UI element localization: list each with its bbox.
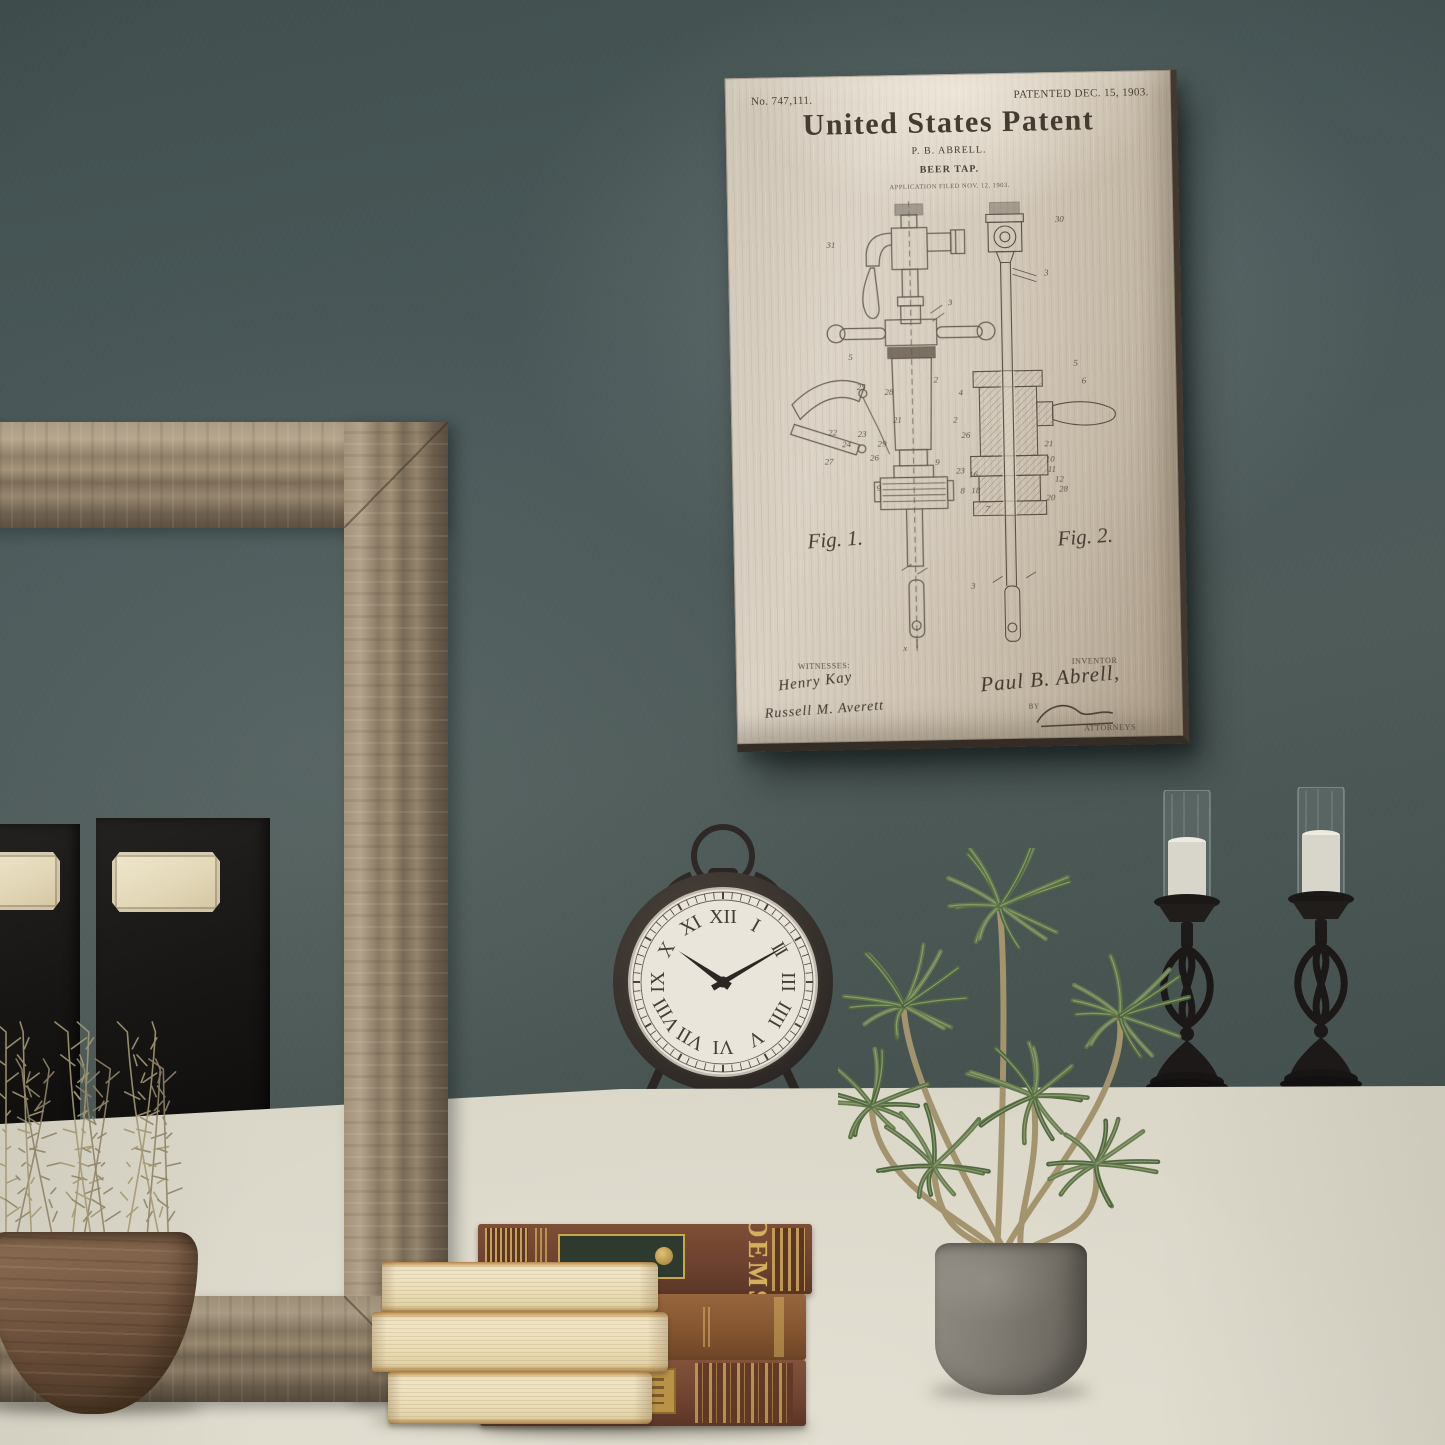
- attorneys-label: ATTORNEYS: [1084, 723, 1136, 733]
- svg-text:4: 4: [958, 388, 963, 398]
- svg-text:6: 6: [1082, 375, 1087, 385]
- gold-rules: [774, 1297, 784, 1356]
- box-label-plate: [112, 852, 220, 912]
- svg-text:21: 21: [893, 414, 902, 424]
- book-fore-edge: [382, 1262, 658, 1312]
- svg-text:23: 23: [956, 465, 966, 475]
- svg-text:XII: XII: [709, 906, 737, 928]
- pocket-watch-style-clock: XIIIIIIIIIIIIVVIVIIVIIIIXXXI: [598, 812, 848, 1122]
- cream-book-stack: [372, 1262, 670, 1426]
- box-label-plate: [0, 852, 60, 910]
- gold-band-pattern: [695, 1363, 793, 1422]
- svg-text:18: 18: [971, 485, 981, 495]
- svg-text:29: 29: [878, 438, 888, 448]
- reference-numerals: 3135225282122232429272699x30354622621238…: [820, 214, 1092, 655]
- svg-text:20: 20: [1046, 492, 1056, 502]
- svg-text:3: 3: [1043, 267, 1049, 277]
- svg-text:21: 21: [1044, 438, 1053, 448]
- svg-text:5: 5: [848, 352, 853, 362]
- room-scene: No. 747,111. PATENTED DEC. 15, 1903. Uni…: [0, 0, 1445, 1445]
- book-fore-edge: [388, 1372, 652, 1424]
- svg-text:10: 10: [1046, 454, 1056, 464]
- frame-right-stile: [344, 422, 448, 1400]
- svg-text:16: 16: [969, 469, 979, 479]
- concrete-plant-pot: [935, 1243, 1087, 1395]
- svg-text:2: 2: [934, 374, 939, 384]
- svg-text:23: 23: [858, 429, 868, 439]
- svg-text:x: x: [902, 643, 907, 653]
- svg-text:7: 7: [985, 503, 990, 513]
- svg-text:VI: VI: [712, 1036, 733, 1058]
- svg-text:28: 28: [884, 387, 894, 397]
- gold-band-pattern: [772, 1228, 805, 1291]
- svg-text:26: 26: [870, 452, 880, 462]
- dried-rosemary-sprigs: [0, 1008, 280, 1254]
- patent-print-artwork: No. 747,111. PATENTED DEC. 15, 1903. Uni…: [725, 70, 1190, 753]
- svg-text:12: 12: [1055, 473, 1065, 483]
- svg-text:28: 28: [1059, 483, 1069, 493]
- patent-technical-drawing: 3135225282122232429272699x30354622621238…: [725, 70, 1184, 743]
- book-fore-edge: [372, 1312, 668, 1372]
- svg-text:9: 9: [876, 483, 881, 493]
- svg-text:22: 22: [828, 427, 838, 437]
- pillar-candle: [1302, 835, 1340, 897]
- book-spine-title: POEMS: [742, 1224, 773, 1294]
- svg-text:8: 8: [960, 485, 965, 495]
- svg-text:11: 11: [1048, 464, 1056, 474]
- fig1-beer-tap-elevation: [786, 200, 1001, 655]
- svg-text:30: 30: [1054, 214, 1065, 224]
- svg-text:24: 24: [842, 439, 852, 449]
- fig2-caption: Fig. 2.: [1057, 523, 1114, 552]
- svg-text:3: 3: [970, 581, 976, 591]
- svg-text:25: 25: [857, 382, 867, 392]
- twisted-iron-cage: [1298, 945, 1345, 1023]
- candlestick-right: [1266, 787, 1376, 1097]
- svg-text:3: 3: [947, 297, 953, 307]
- svg-text:IX: IX: [647, 971, 669, 993]
- svg-text:III: III: [777, 972, 799, 992]
- svg-text:2: 2: [953, 414, 958, 424]
- fig2-beer-tap-cross-section: [966, 200, 1120, 642]
- svg-text:26: 26: [961, 430, 971, 440]
- svg-text:5: 5: [1073, 358, 1078, 368]
- svg-text:9: 9: [935, 457, 940, 467]
- svg-text:31: 31: [825, 240, 835, 250]
- svg-text:27: 27: [825, 456, 835, 466]
- clock-center-cap: [718, 977, 729, 988]
- fig1-caption: Fig. 1.: [807, 525, 864, 554]
